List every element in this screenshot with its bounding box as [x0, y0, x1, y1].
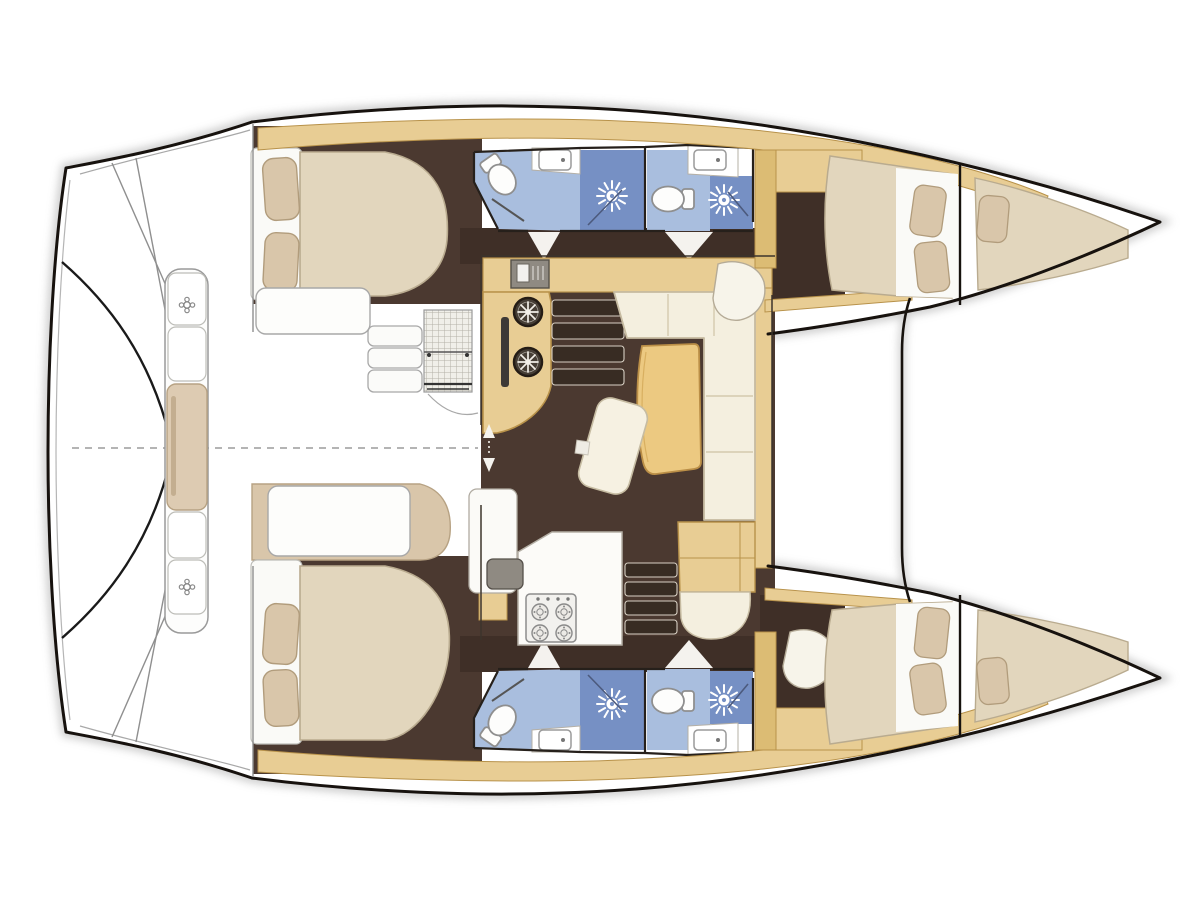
- pillow: [976, 657, 1010, 705]
- nav-desk: [678, 522, 755, 592]
- galley-handrail: [501, 317, 509, 387]
- cockpit-step-lockers: [368, 326, 422, 392]
- stove-4-burner: [526, 594, 576, 642]
- saloon-front-wall: [755, 288, 772, 568]
- foredeck-coachroof-line: [902, 298, 910, 602]
- sink-icon: [694, 730, 726, 750]
- door-window: [487, 559, 523, 589]
- toilet-icon: [652, 689, 694, 714]
- vanity-side: [755, 632, 776, 750]
- shower-floor: [580, 669, 645, 750]
- galley-burner-icon: [514, 348, 542, 376]
- bench-cushion-seam: [171, 396, 176, 496]
- shower-floor: [710, 671, 753, 724]
- starboard-bathrooms: [474, 669, 753, 755]
- double-bed: [300, 152, 447, 296]
- saloon: [460, 190, 845, 710]
- floor-plan-page: [0, 0, 1200, 900]
- vanity-side: [755, 150, 776, 268]
- port-bathrooms: [474, 145, 753, 231]
- sink-icon: [539, 730, 571, 750]
- cockpit-mesh-table: [424, 310, 472, 392]
- cabin-seat: [268, 486, 410, 556]
- sink-icon: [694, 150, 726, 170]
- shower-floor: [580, 150, 645, 231]
- shower-floor: [710, 176, 753, 229]
- starboard-aft-cabin: [251, 484, 482, 776]
- galley-burner-icon: [514, 298, 542, 326]
- catamaran-floor-plan: [0, 0, 1200, 900]
- galley-appliance: [511, 260, 549, 288]
- toilet-icon: [652, 187, 694, 212]
- port-aft-cabin: [251, 124, 482, 334]
- cabin-seat: [256, 288, 370, 334]
- pillow: [976, 195, 1010, 243]
- sink-icon: [539, 150, 571, 170]
- floor-hatch: [575, 440, 590, 455]
